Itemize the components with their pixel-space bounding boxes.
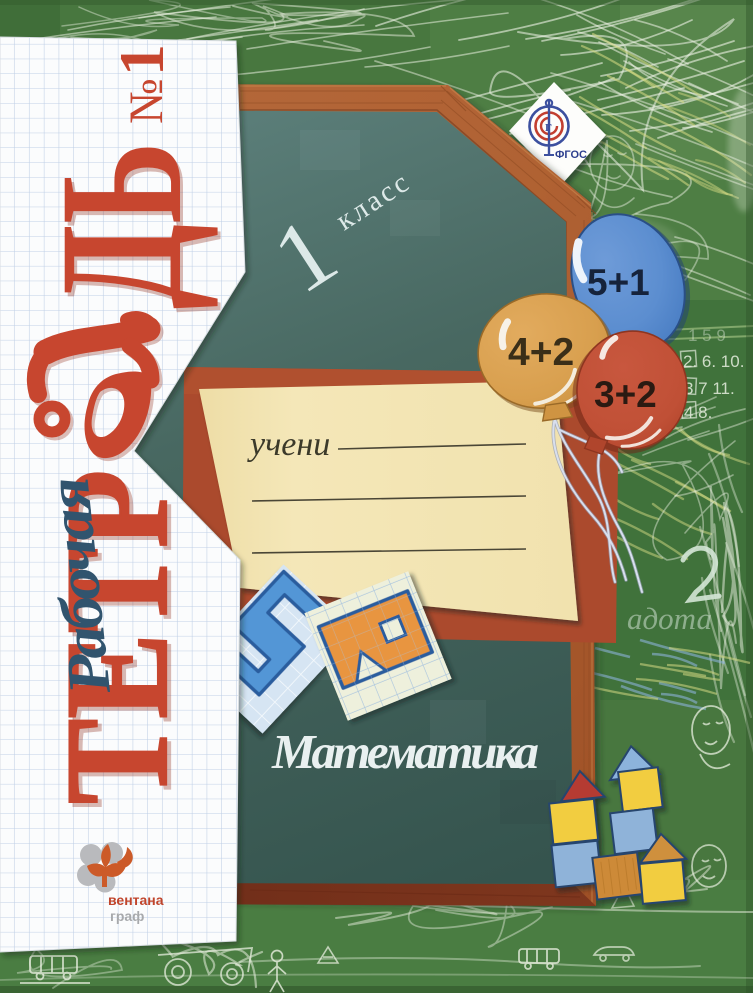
svg-text:учени: учени xyxy=(247,426,330,463)
svg-text:1: 1 xyxy=(106,44,177,76)
svg-text:ДЬ: ДЬ xyxy=(23,142,218,309)
svg-text:граф: граф xyxy=(110,908,144,924)
svg-text:ФГОС: ФГОС xyxy=(555,149,587,161)
svg-text:4 8.: 4 8. xyxy=(684,403,712,422)
svg-text:№: № xyxy=(120,78,173,124)
svg-text:3 7 11.: 3 7 11. xyxy=(684,379,735,398)
svg-text:3+2: 3+2 xyxy=(594,374,657,415)
svg-text:вентана: вентана xyxy=(108,892,164,908)
svg-text:4+2: 4+2 xyxy=(508,331,574,374)
svg-text:1 5 9: 1 5 9 xyxy=(688,326,726,345)
svg-text:2. 6. 10.: 2. 6. 10. xyxy=(683,352,744,371)
svg-text:адота: адота xyxy=(627,601,712,636)
svg-text:Математика: Математика xyxy=(271,724,539,779)
svg-text:5+1: 5+1 xyxy=(587,262,650,303)
